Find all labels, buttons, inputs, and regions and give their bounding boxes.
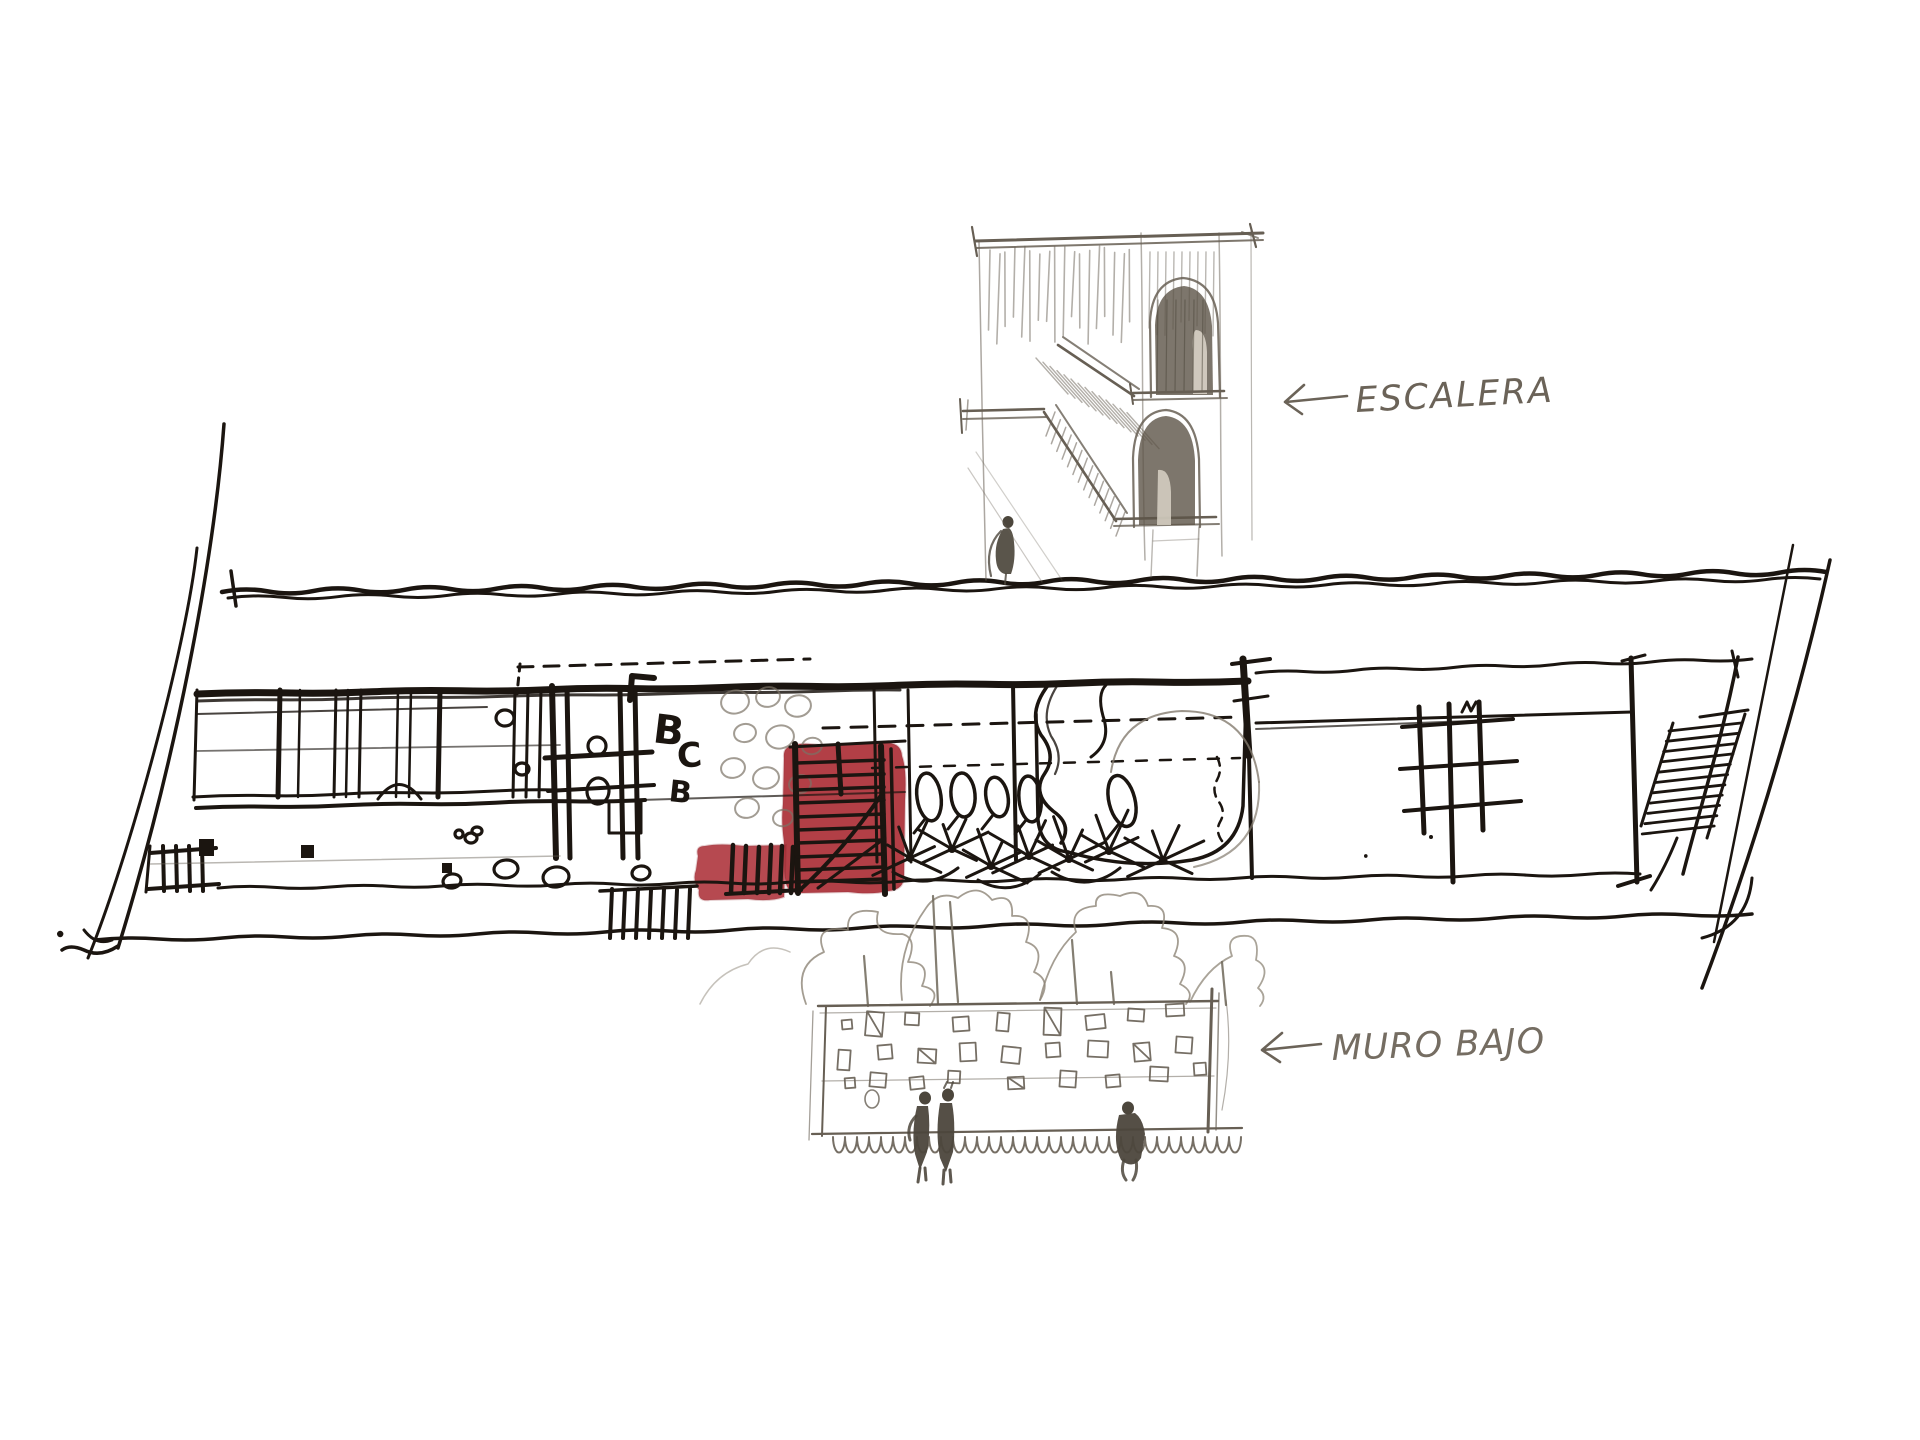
plan-band-sketch bbox=[57, 424, 1830, 988]
sketch-canvas: B C B ESCALERA MURO BAJO bbox=[0, 0, 1920, 1440]
annotation-escalera: ESCALERA bbox=[1285, 371, 1555, 421]
tree-sketch bbox=[700, 890, 1265, 1006]
left-arrow-icon bbox=[1262, 1033, 1321, 1062]
plan-room-labels: B C B bbox=[651, 706, 704, 811]
left-arrow-icon bbox=[1285, 385, 1347, 414]
sketch-page: B C B ESCALERA MURO BAJO bbox=[0, 0, 1920, 1440]
room-label-b2: B bbox=[667, 774, 693, 811]
low-wall-elevation-sketch bbox=[809, 989, 1242, 1184]
annotation-escalera-label: ESCALERA bbox=[1354, 371, 1554, 421]
annotation-muro-bajo: MURO BAJO bbox=[1262, 1022, 1546, 1069]
room-label-c: C bbox=[675, 735, 703, 777]
annotation-muro-bajo-label: MURO BAJO bbox=[1331, 1022, 1546, 1069]
stair-section-sketch bbox=[960, 224, 1263, 584]
